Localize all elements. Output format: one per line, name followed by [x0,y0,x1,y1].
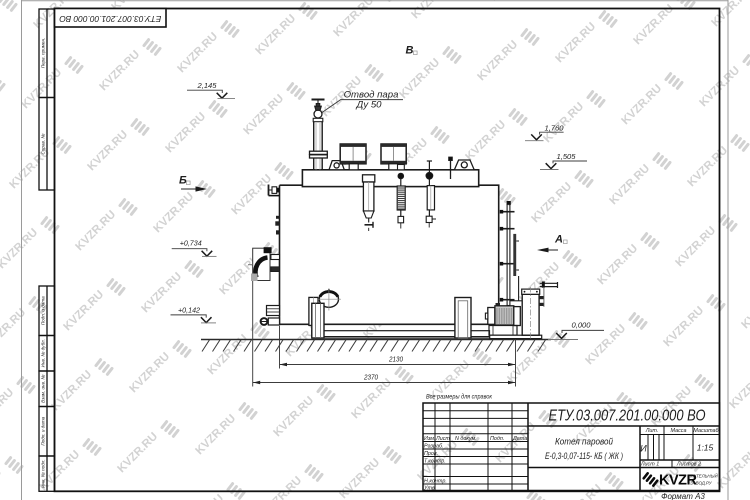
svg-text:KVZR.RU: KVZR.RU [620,83,665,128]
svg-text:Перв. примен.: Перв. примен. [40,38,45,69]
svg-text:KVZR.RU: KVZR.RU [716,447,750,492]
svg-text:KVZR.RU: KVZR.RU [260,475,305,500]
svg-text:KVZR.RU: KVZR.RU [182,493,227,500]
svg-text:В: В [406,45,414,57]
svg-text:KVZR.RU: KVZR.RU [494,421,539,466]
svg-text:N докум.: N докум. [455,436,477,442]
svg-text:2130: 2130 [388,357,403,364]
svg-text:KVZR.RU: KVZR.RU [98,49,143,94]
svg-text:KVZR.RU: KVZR.RU [674,225,719,270]
svg-text:KVZR.RU: KVZR.RU [86,129,131,174]
svg-text:Подп.: Подп. [490,436,504,442]
svg-text:Масса: Масса [671,428,687,434]
svg-text:Подп. и дата: Подп. и дата [40,416,45,445]
svg-text:KVZR.RU: KVZR.RU [0,387,16,432]
svg-text:Инв. № подл.: Инв. № подл. [40,459,45,488]
svg-text:Дата: Дата [512,436,527,442]
svg-text:KVZR.RU: KVZR.RU [686,145,731,190]
svg-text:Разраб.: Разраб. [424,444,444,450]
svg-text:Н.контр.: Н.контр. [424,479,447,485]
svg-text:KVZR.RU: KVZR.RU [0,467,4,500]
svg-text:KVZR.RU: KVZR.RU [728,367,750,412]
svg-text:Все размеры для справок: Все размеры для справок [426,393,493,401]
svg-text:ЕТУ.03.007.201.00.000 ВО: ЕТУ.03.007.201.00.000 ВО [549,408,706,425]
svg-text:1:15: 1:15 [697,443,714,453]
svg-text:Утв.: Утв. [423,486,436,492]
svg-text:KVZR.RU: KVZR.RU [0,227,40,272]
svg-text:Т.контр.: Т.контр. [424,459,446,465]
svg-text:И: И [640,444,647,454]
svg-text:KVZR.RU: KVZR.RU [740,287,750,332]
svg-text:КОТЕЛЬНЫЙ: КОТЕЛЬНЫЙ [690,474,718,479]
svg-text:KVZR.RU: KVZR.RU [662,305,707,350]
svg-text:ЕТУ.03.007.201.00.000 ВО: ЕТУ.03.007.201.00.000 ВО [59,14,161,24]
svg-text:0,000: 0,000 [572,321,591,330]
svg-text:Листов 2: Листов 2 [676,462,701,468]
svg-text:KVZR.RU: KVZR.RU [116,431,161,476]
svg-text:2370: 2370 [363,375,378,382]
svg-text:KVZR.RU: KVZR.RU [8,147,53,192]
svg-text:KVZR.RU: KVZR.RU [128,351,173,396]
svg-text:Лит.: Лит. [645,428,659,434]
svg-text:1,505: 1,505 [557,152,577,161]
svg-text:KVZR.RU: KVZR.RU [398,57,443,102]
svg-text:KVZR.RU: KVZR.RU [710,0,750,29]
svg-text:KVZR.RU: KVZR.RU [50,369,95,414]
svg-text:KVZR.RU: KVZR.RU [554,21,599,66]
svg-text:KVZR.RU: KVZR.RU [62,289,107,334]
svg-text:KVZR.RU: KVZR.RU [464,119,509,164]
svg-text:KVZR.RU: KVZR.RU [254,13,299,58]
svg-text:KVZR.RU: KVZR.RU [338,457,383,500]
svg-text:KVZR.RU: KVZR.RU [410,0,455,21]
svg-text:Б: Б [179,175,187,187]
svg-text:KVZR.RU: KVZR.RU [272,395,317,440]
svg-text:А: А [554,234,563,246]
svg-text:KVZR.RU: KVZR.RU [152,191,197,236]
svg-text:Масштаб: Масштаб [693,428,719,434]
svg-text:KVZR.RU: KVZR.RU [230,173,275,218]
svg-text:Котел паровой: Котел паровой [555,437,614,448]
svg-text:Лист 1: Лист 1 [640,462,659,468]
svg-text:Справ. №: Справ. № [40,134,45,155]
svg-text:2,145: 2,145 [196,81,217,90]
svg-text:+0,142: +0,142 [178,306,200,315]
svg-text:Инв. № дубл.: Инв. № дубл. [40,339,45,367]
svg-text:KVZR.RU: KVZR.RU [20,67,65,112]
svg-text:Взам. инв. №: Взам. инв. № [40,374,45,402]
svg-text:KVZR.RU: KVZR.RU [0,307,28,352]
svg-text:1,760: 1,760 [545,124,564,133]
svg-text:KVZR.RU: KVZR.RU [506,341,551,386]
svg-text:KVZR.RU: KVZR.RU [332,0,377,39]
svg-text:KVZR.RU: KVZR.RU [74,209,119,254]
svg-text:KVZR.RU: KVZR.RU [242,93,287,138]
svg-text:KVZR.RU: KVZR.RU [596,243,641,288]
svg-text:KVZR.RU: KVZR.RU [476,39,521,84]
svg-text:Е-0,3-0,07-115- КБ ( ЖК ): Е-0,3-0,07-115- КБ ( ЖК ) [545,451,623,461]
svg-text:Пров.: Пров. [424,451,438,457]
svg-text:Формат А3: Формат А3 [661,492,705,500]
svg-text:KVZR.RU: KVZR.RU [176,31,221,76]
svg-text:Изм.: Изм. [424,436,436,442]
svg-text:Лист: Лист [435,436,450,442]
svg-text:KVZR.RU: KVZR.RU [350,377,395,422]
svg-text:ЗАВОД.РУ: ЗАВОД.РУ [690,481,713,486]
svg-text:KVZR.RU: KVZR.RU [530,181,575,226]
svg-text:+0,734: +0,734 [180,239,202,248]
svg-text:KVZR.RU: KVZR.RU [194,413,239,458]
svg-text:Подп. и дата: Подп. и дата [40,296,45,325]
svg-text:Ду 50: Ду 50 [356,100,383,111]
svg-text:KVZR.RU: KVZR.RU [164,111,209,156]
svg-text:KVZR.RU: KVZR.RU [608,163,653,208]
